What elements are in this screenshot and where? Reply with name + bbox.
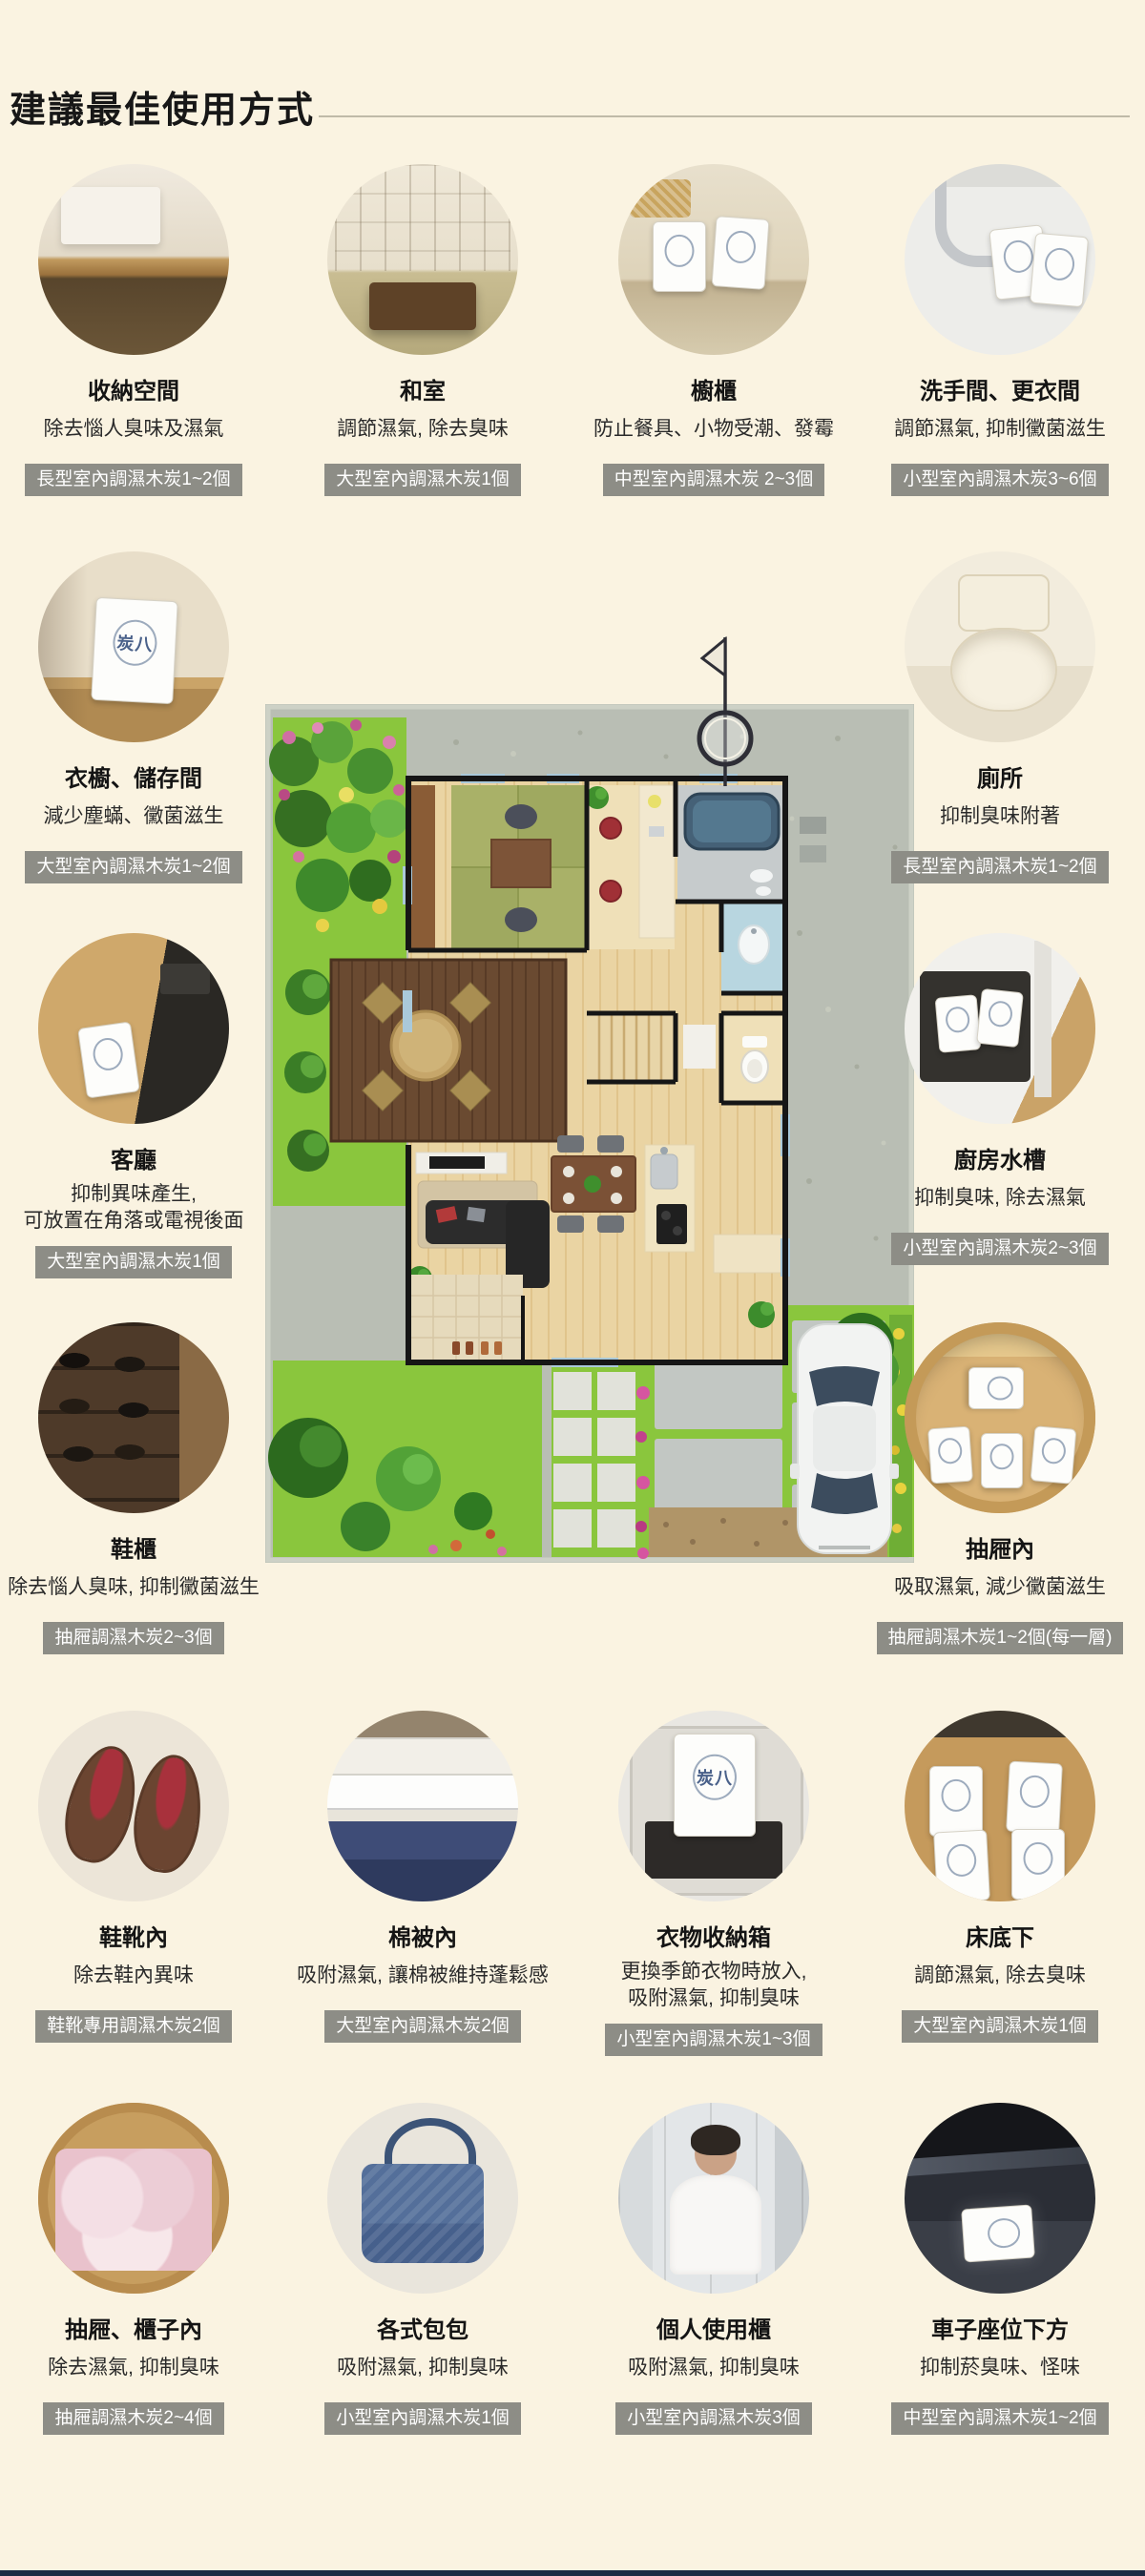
photo-washitsu	[327, 164, 518, 355]
item-badge: 大型室內調濕木炭2個	[324, 2010, 521, 2043]
shoe-icon	[128, 1751, 209, 1877]
charcoal-bag-icon	[711, 216, 769, 290]
photo-drawer-cabinet-inside	[38, 2103, 229, 2294]
handbag-icon	[362, 2164, 484, 2263]
entrance-genkan	[410, 1275, 523, 1361]
usage-card-shoe-cabinet: 鞋櫃 除去惱人臭味, 抑制黴菌滋生 抽屜調濕木炭2~3個	[0, 1322, 277, 1654]
bathroom	[677, 785, 785, 902]
photo-art	[327, 1774, 518, 1776]
photo-under-bed	[905, 1711, 1095, 1901]
item-title: 廁所	[857, 765, 1143, 794]
item-desc: 抑制臭味附著	[857, 803, 1143, 830]
item-title: 櫥櫃	[571, 378, 857, 406]
item-badge: 抽屜調濕木炭2~4個	[43, 2402, 223, 2435]
page-title: 建議最佳使用方式	[10, 80, 315, 133]
item-title: 衣櫥、儲存間	[0, 765, 277, 794]
bag-logo-text: 炭八	[697, 1765, 733, 1790]
item-desc: 減少塵蟎、黴菌滋生	[0, 803, 277, 830]
item-title: 鞋櫃	[0, 1536, 277, 1565]
tatami-room	[451, 785, 585, 949]
item-badge: 抽屜調濕木炭2~3個	[43, 1622, 223, 1654]
usage-card-drawer-inside: 抽屜內 吸取濕氣, 減少黴菌滋生 抽屜調濕木炭1~2個(每一層)	[857, 1322, 1143, 1654]
item-badge: 中型室內調濕木炭1~2個	[891, 2402, 1108, 2435]
item-title: 床底下	[857, 1924, 1143, 1953]
stairs	[587, 1013, 676, 1082]
charcoal-bag-icon	[1006, 1761, 1063, 1835]
item-desc: 調節濕氣, 除去臭味	[280, 416, 566, 443]
item-badge: 小型室內調濕木炭3~6個	[891, 464, 1108, 496]
closet-strip	[410, 785, 435, 949]
usage-card-shoes-inside: 鞋靴內 除去鞋內異味 鞋靴專用調濕木炭2個	[0, 1711, 277, 2043]
item-desc: 吸附濕氣, 讓棉被維持蓬鬆感	[280, 1963, 566, 1989]
item-title: 抽屜、櫃子內	[0, 2316, 277, 2345]
photo-kitchen-sink	[905, 933, 1095, 1124]
item-badge: 大型室內調濕木炭1~2個	[25, 851, 241, 883]
product-usage-guide-page: 建議最佳使用方式	[0, 0, 1145, 2576]
usage-card-under-car-seat: 車子座位下方 抑制菸臭味、怪味 中型室內調濕木炭1~2個	[857, 2103, 1143, 2435]
item-desc: 除去惱人臭味, 抑制黴菌滋生	[0, 1574, 277, 1601]
item-desc: 更換季節衣物時放入, 吸附濕氣, 抑制臭味	[571, 1959, 857, 2012]
item-desc: 吸附濕氣, 抑制臭味	[571, 2355, 857, 2381]
bushes-left	[284, 969, 331, 1172]
photo-storage-space	[38, 164, 229, 355]
usage-card-storage-space: 收納空間 除去惱人臭味及濕氣 長型室內調濕木炭1~2個	[0, 164, 277, 496]
usage-card-drawer-cabinet-inside: 抽屜、櫃子內 除去濕氣, 抑制臭味 抽屜調濕木炭2~4個	[0, 2103, 277, 2435]
item-badge: 大型室內調濕木炭1個	[35, 1246, 232, 1278]
seat-rail-art	[905, 2145, 1095, 2176]
charcoal-bag-icon	[981, 1433, 1023, 1488]
photo-personal-locker	[618, 2103, 809, 2294]
item-desc: 吸取濕氣, 減少黴菌滋生	[857, 1574, 1143, 1601]
photo-art	[369, 282, 476, 330]
charcoal-bag-icon	[1030, 233, 1089, 308]
item-desc: 抑制臭味, 除去濕氣	[857, 1185, 1143, 1212]
photo-toilet	[905, 551, 1095, 742]
usage-card-kitchen-sink: 廚房水槽 抑制臭味, 除去濕氣 小型室內調濕木炭2~3個	[857, 933, 1143, 1265]
charcoal-bag-icon	[653, 221, 706, 292]
photo-living-room	[38, 933, 229, 1124]
item-desc: 抑制菸臭味、怪味	[857, 2355, 1143, 2381]
item-badge: 抽屜調濕木炭1~2個(每一層)	[877, 1622, 1124, 1654]
wood-deck	[331, 960, 566, 1141]
item-badge: 長型室內調濕木炭1~2個	[25, 464, 241, 496]
charcoal-bag-icon	[1011, 1829, 1065, 1900]
usage-card-washroom-dressing: 洗手間、更衣間 調節濕氣, 抑制黴菌滋生 小型室內調濕木炭3~6個	[857, 164, 1143, 496]
usage-card-futon-inside: 棉被內 吸附濕氣, 讓棉被維持蓬鬆感 大型室內調濕木炭2個	[280, 1711, 566, 2043]
item-badge: 小型室內調濕木炭2~3個	[891, 1233, 1108, 1265]
usage-card-living-room: 客廳 抑制異味產生, 可放置在角落或電視後面 大型室內調濕木炭1個	[0, 933, 277, 1278]
charcoal-bag-icon: 炭八	[674, 1734, 756, 1837]
photo-art	[1034, 941, 1051, 1097]
item-desc: 除去濕氣, 抑制臭味	[0, 2355, 277, 2381]
item-badge: 小型室內調濕木炭1~3個	[605, 2024, 822, 2056]
item-title: 洗手間、更衣間	[857, 378, 1143, 406]
item-badge: 大型室內調濕木炭1個	[324, 464, 521, 496]
bag-logo-text: 炭八	[116, 630, 154, 656]
item-title: 和室	[280, 378, 566, 406]
item-title: 衣物收納箱	[571, 1924, 857, 1953]
item-badge: 小型室內調濕木炭3個	[615, 2402, 812, 2435]
charcoal-bag-icon	[933, 1830, 990, 1901]
photo-drawer-inside	[905, 1322, 1095, 1513]
item-desc: 吸附濕氣, 抑制臭味	[280, 2355, 566, 2381]
location-pin-icon	[693, 632, 760, 794]
usage-card-under-bed: 床底下 調節濕氣, 除去臭味 大型室內調濕木炭1個	[857, 1711, 1143, 2043]
photo-shoes-inside	[38, 1711, 229, 1901]
item-desc: 防止餐具、小物受潮、發霉	[571, 416, 857, 443]
clothes-art	[55, 2149, 212, 2271]
item-desc: 除去鞋內異味	[0, 1963, 277, 1989]
usage-card-clothing-storage-box: 炭八 衣物收納箱 更換季節衣物時放入, 吸附濕氣, 抑制臭味 小型室內調濕木炭1…	[571, 1711, 857, 2056]
item-title: 鞋靴內	[0, 1924, 277, 1953]
floor-plan-illustration	[265, 704, 914, 1563]
charcoal-bag-icon	[927, 1426, 973, 1485]
item-title: 收納空間	[0, 378, 277, 406]
photo-wardrobe-storeroom: 炭八	[38, 551, 229, 742]
photo-art	[38, 551, 88, 742]
item-title: 抽屜內	[857, 1536, 1143, 1565]
shoes-art	[42, 1330, 176, 1506]
usage-card-cupboard: 櫥櫃 防止餐具、小物受潮、發霉 中型室內調濕木炭 2~3個	[571, 164, 857, 496]
toilet-room	[721, 1013, 785, 1103]
kitchen-nook	[586, 785, 675, 949]
washroom	[721, 902, 785, 993]
photo-art	[335, 164, 510, 271]
item-title: 客廳	[0, 1147, 277, 1175]
charcoal-bag-icon: 炭八	[91, 597, 178, 704]
item-title: 各式包包	[280, 2316, 566, 2345]
usage-card-bags: 各式包包 吸附濕氣, 抑制臭味 小型室內調濕木炭1個	[280, 2103, 566, 2435]
item-desc: 抑制異味產生, 可放置在角落或電視後面	[0, 1181, 277, 1235]
item-badge: 大型室內調濕木炭1個	[902, 2010, 1098, 2043]
charcoal-bag-icon	[935, 994, 982, 1053]
item-desc: 調節濕氣, 抑制黴菌滋生	[857, 416, 1143, 443]
item-badge: 小型室內調濕木炭1個	[324, 2402, 521, 2435]
charcoal-bag-icon	[961, 2204, 1035, 2262]
item-badge: 鞋靴專用調濕木炭2個	[35, 2010, 232, 2043]
photo-under-car-seat	[905, 2103, 1095, 2294]
person-head-art	[695, 2133, 737, 2175]
item-title: 棉被內	[280, 1924, 566, 1953]
bottom-accent-bar	[0, 2570, 1145, 2576]
photo-art	[160, 964, 210, 994]
charcoal-bag-icon	[968, 1367, 1024, 1409]
kitchen-counter	[714, 1235, 782, 1273]
charcoal-bag-icon	[77, 1021, 140, 1098]
item-badge: 中型室內調濕木炭 2~3個	[603, 464, 825, 496]
item-title: 車子座位下方	[857, 2316, 1143, 2345]
photo-cupboard	[618, 164, 809, 355]
item-badge: 長型室內調濕木炭1~2個	[891, 851, 1108, 883]
usage-card-wardrobe-storeroom: 炭八 衣櫥、儲存間 減少塵蟎、黴菌滋生 大型室內調濕木炭1~2個	[0, 551, 277, 883]
usage-card-personal-locker: 個人使用櫃 吸附濕氣, 抑制臭味 小型室內調濕木炭3個	[571, 2103, 857, 2435]
kitchen-island	[645, 1145, 695, 1252]
photo-futon-inside	[327, 1711, 518, 1901]
photo-clothing-storage-box: 炭八	[618, 1711, 809, 1901]
item-title: 廚房水槽	[857, 1147, 1143, 1175]
photo-bags	[327, 2103, 518, 2294]
charcoal-bag-icon	[929, 1766, 983, 1837]
item-desc: 調節濕氣, 除去臭味	[857, 1963, 1143, 1989]
photo-shoe-cabinet	[38, 1322, 229, 1513]
storage-box	[683, 1025, 716, 1069]
charcoal-bag-icon	[1030, 1425, 1077, 1485]
photo-art	[630, 179, 691, 218]
item-title: 個人使用櫃	[571, 2316, 857, 2345]
toilet-tank-icon	[958, 574, 1050, 632]
person-body-art	[670, 2175, 761, 2275]
shoe-icon	[55, 1739, 147, 1870]
photo-art	[61, 187, 160, 244]
photo-washroom-dressing	[905, 164, 1095, 355]
usage-card-toilet: 廁所 抑制臭味附著 長型室內調濕木炭1~2個	[857, 551, 1143, 883]
item-desc: 除去惱人臭味及濕氣	[0, 416, 277, 443]
title-divider	[319, 115, 1130, 117]
charcoal-bag-icon	[976, 988, 1024, 1048]
usage-card-washitsu: 和室 調節濕氣, 除去臭味 大型室內調濕木炭1個	[280, 164, 566, 496]
toilet-bowl-icon	[950, 628, 1057, 712]
